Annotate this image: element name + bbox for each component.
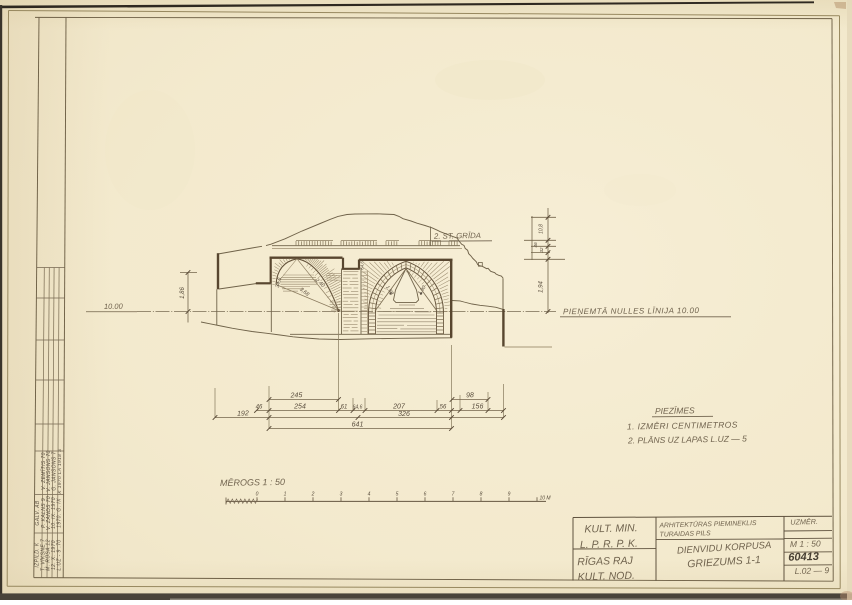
svg-text:UZMĒR.: UZMĒR. [790, 517, 818, 527]
svg-text:M 1 : 50: M 1 : 50 [790, 538, 821, 549]
svg-text:3: 3 [340, 492, 343, 498]
svg-text:MĒROGS 1 : 50: MĒROGS 1 : 50 [220, 477, 285, 488]
svg-text:RĪGAS RAJ: RĪGAS RAJ [577, 555, 633, 568]
svg-text:2. ST. GRĪDA: 2. ST. GRĪDA [433, 231, 481, 241]
svg-text:61: 61 [341, 404, 348, 410]
svg-text:56: 56 [440, 404, 447, 410]
svg-text:326: 326 [398, 411, 410, 418]
svg-text:G. JANSONS 7: G. JANSONS 7 [51, 451, 57, 490]
svg-text:KULT. NOD.: KULT. NOD. [578, 570, 635, 583]
svg-text:1970. G. IX: 1970. G. IX [57, 498, 63, 528]
svg-text:10 M: 10 M [539, 496, 551, 502]
svg-text:6: 6 [424, 492, 427, 498]
svg-text:4: 4 [368, 492, 371, 498]
svg-text:1. IZMĒRI CENTIMETROS: 1. IZMĒRI CENTIMETROS [627, 420, 738, 432]
svg-text:PIEZĪMES: PIEZĪMES [655, 405, 695, 416]
svg-text:10.00: 10.00 [104, 302, 124, 311]
svg-text:TURAIDAS PILS: TURAIDAS PILS [660, 530, 712, 538]
svg-text:1,86: 1,86 [180, 287, 186, 299]
svg-text:2. PLĀNS UZ LAPAS L.UZ — 5: 2. PLĀNS UZ LAPAS L.UZ — 5 [627, 433, 747, 445]
svg-text:64,6: 64,6 [360, 261, 365, 270]
svg-text:0: 0 [256, 492, 259, 498]
svg-text:641: 641 [352, 421, 364, 428]
svg-text:245: 245 [289, 392, 302, 399]
svg-text:PIEŅEMTĀ NULLES LĪNIJA 10.0: PIEŅEMTĀ NULLES LĪNIJA 10.00 [563, 306, 700, 316]
svg-text:46: 46 [256, 404, 263, 410]
svg-text:5: 5 [396, 492, 399, 498]
svg-text:156: 156 [472, 403, 484, 410]
svg-text:32: 32 [539, 247, 544, 252]
svg-text:7: 7 [452, 492, 455, 498]
svg-text:254: 254 [293, 403, 306, 410]
svg-text:KULT. MIN.: KULT. MIN. [584, 522, 637, 535]
svg-text:46: 46 [533, 242, 539, 248]
svg-text:L.02 — 9: L.02 — 9 [795, 565, 830, 576]
svg-text:2: 2 [311, 492, 315, 498]
svg-text:192: 192 [237, 410, 249, 417]
svg-text:8: 8 [480, 492, 483, 498]
svg-text:10,8: 10,8 [539, 224, 545, 234]
svg-text:64,6: 64,6 [353, 405, 363, 411]
svg-text:207: 207 [392, 403, 406, 410]
svg-text:9: 9 [508, 492, 511, 498]
svg-text:98: 98 [466, 392, 474, 399]
svg-text:1: 1 [284, 492, 287, 498]
svg-text:L. P. R. P. K.: L. P. R. P. K. [580, 538, 638, 552]
svg-text:L.UZ - 9 .70: L.UZ - 9 .70 [56, 539, 62, 570]
svg-text:60413: 60413 [788, 551, 819, 564]
svg-text:K 1970 LA 1918 S: K 1970 LA 1918 S [57, 448, 63, 494]
svg-text:1,94: 1,94 [539, 281, 545, 293]
